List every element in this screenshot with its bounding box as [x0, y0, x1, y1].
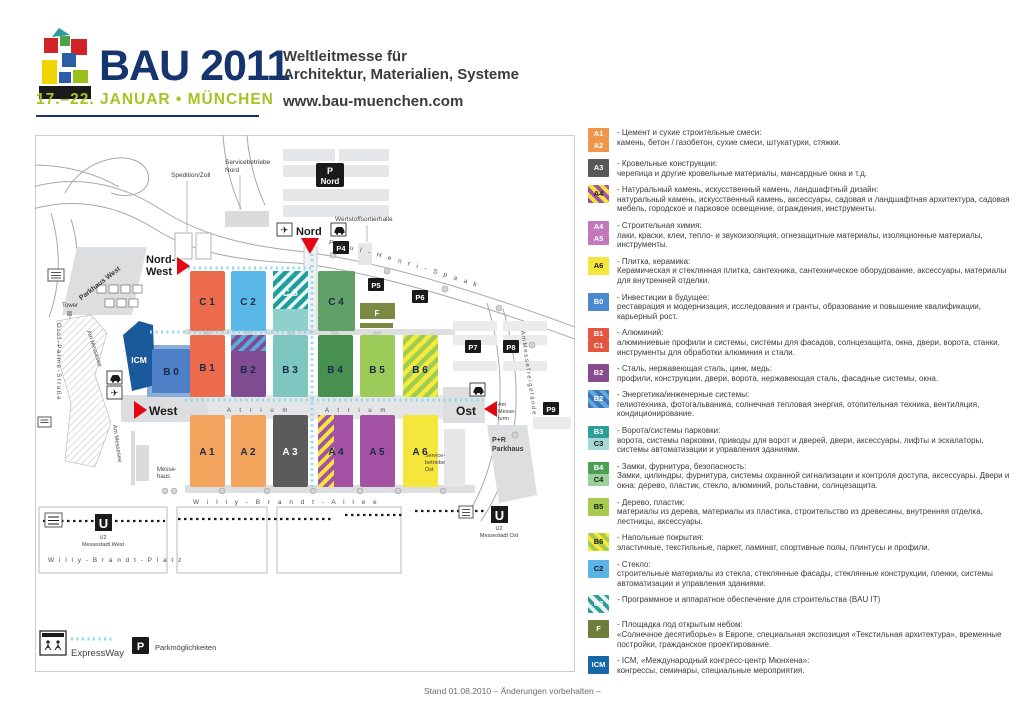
legend-title: - Дерево, пластик:: [617, 498, 1016, 508]
legend-title: - Натуральный камень, искусственный каме…: [617, 185, 1016, 195]
willy-brandt-platz-label: W i l l y - B r a n d t - P l a t z: [48, 557, 183, 564]
hall-label-c4: C 4: [328, 297, 344, 308]
hall-label-b4: B 4: [327, 365, 343, 376]
hall-code-chip: B4C4: [588, 462, 609, 491]
nord-entrance-label: Nord: [296, 226, 322, 238]
wertstoffsortierhalle-label: Wertstoffsortierhalle: [335, 216, 393, 223]
svg-text:U: U: [495, 508, 504, 523]
hall-code-chip: B0: [588, 293, 609, 322]
legend-item: B2 - Энергетика/инженерные системы: гели…: [588, 390, 1016, 419]
hall-label-b2: B 2: [240, 365, 256, 376]
atrium-label: A t r i u m: [325, 408, 389, 414]
svg-text:Nord: Nord: [321, 177, 340, 186]
legend-item: C2 - Стекло: строительные материалы из с…: [588, 560, 1016, 589]
hall-label-b0: B 0: [163, 367, 179, 378]
legend-title: - Напольные покрытия:: [617, 533, 1016, 543]
hall-label-icm: ICM: [131, 355, 147, 365]
legend-item: B2 - Сталь, нержавеющая сталь, цинк, мед…: [588, 364, 1016, 383]
legend-desc: «Солнечное десятиборье» в Европе, специа…: [617, 630, 1016, 649]
svg-text:Parkhaus: Parkhaus: [492, 446, 524, 453]
tower-icon: [67, 311, 72, 316]
legend-title: - Алюминий:: [617, 328, 1016, 338]
legend-item: C3 - Программное и аппаратное обеспечени…: [588, 595, 1016, 613]
hall-label-b1: B 1: [199, 363, 215, 374]
hall-code: B2: [588, 364, 609, 382]
site-map: C 1 C 2 C 3 C 4 B 0 B 1 B 2 B 3 B 4 B 5 …: [35, 135, 575, 672]
bus-icon: [459, 506, 473, 518]
hall-code: B1: [588, 328, 609, 340]
legend-title: - Кровельные конструкции:: [617, 159, 1016, 169]
hall-label-b3: B 3: [282, 365, 298, 376]
svg-text:U2: U2: [99, 535, 106, 541]
svg-text:U2: U2: [495, 526, 502, 532]
website-link[interactable]: www.bau-muenchen.com: [283, 93, 463, 110]
legend-desc: строительные материалы из стекла, стекля…: [617, 569, 1016, 588]
page: BAU 2011 17.–22. JANUAR • MÜNCHEN Weltle…: [0, 0, 1024, 707]
hall-label-a1: A 1: [199, 447, 215, 458]
hall-code: A1: [588, 128, 609, 140]
svg-text:P: P: [137, 641, 144, 653]
hall-code-chip: B1C1: [588, 328, 609, 357]
svg-text:✈: ✈: [281, 225, 289, 235]
claim-line2: Architektur, Materialien, Systeme: [283, 66, 519, 83]
svg-text:P: P: [327, 166, 333, 176]
parkride-icon: [38, 417, 51, 427]
legend-title: - Ворота/системы парковки:: [617, 426, 1016, 436]
legend-item: A6 - Плитка, керамика: Керамическая и ст…: [588, 257, 1016, 286]
plane-badge-west: ✈: [107, 386, 122, 399]
legend-desc: конгрессы, семинары, специальные меропри…: [617, 666, 1016, 676]
footer-note: Stand 01.08.2010 – Änderungen vorbehalte…: [424, 686, 601, 696]
hall-code-chip: A1A2: [588, 128, 609, 152]
legend-item: B1C1 - Алюминий: алюминиевые профили и с…: [588, 328, 1016, 357]
pr-parkhaus-label: P+R: [492, 437, 506, 444]
nordwest-entrance-label: Nord-: [146, 254, 176, 266]
hall-code: B6: [588, 533, 609, 551]
legend-desc: натуральный камень, искусственный камень…: [617, 195, 1016, 214]
hall-code: B2: [588, 390, 609, 408]
svg-text:Messestadt West: Messestadt West: [82, 542, 125, 548]
svg-text:Messestadt Ost: Messestadt Ost: [480, 533, 519, 539]
area-label-f: F: [375, 309, 380, 318]
page-title: BAU 2011: [99, 42, 289, 91]
legend-desc: лаки, краски, клеи, тепло- и звукоизоляц…: [617, 231, 1016, 250]
parkmoeglichkeiten-label: Parkmöglichkeiten: [155, 643, 216, 652]
hall-label-b5: B 5: [369, 365, 385, 376]
legend-title: - Цемент и сухие строительные смеси:: [617, 128, 1016, 138]
svg-text:P7: P7: [468, 343, 477, 352]
legend-desc: реставрация и модернизация, исследования…: [617, 302, 1016, 321]
hall-code: A3: [588, 159, 609, 177]
svg-text:P8: P8: [506, 343, 515, 352]
legend-item: A1A2 - Цемент и сухие строительные смеси…: [588, 128, 1016, 152]
hall-code: A2: [588, 140, 609, 152]
messehaus-building: [136, 445, 149, 481]
svg-text:betriebe: betriebe: [425, 460, 445, 466]
hall-code: A4: [588, 221, 609, 233]
legend-desc: алюминиевые профили и системы, системы д…: [617, 338, 1016, 357]
legend-desc: Замки, цилиндры, фурнитура, системы охра…: [617, 471, 1016, 490]
hall-code-chip: B2: [588, 364, 609, 383]
claim-line1: Weltleitmesse für: [283, 48, 407, 65]
legend-title: - Строительная химия:: [617, 221, 1016, 231]
legend-desc: материалы из дерева, материалы из пласти…: [617, 507, 1016, 526]
legend-item: B3C3 - Ворота/системы парковки: ворота, …: [588, 426, 1016, 455]
servicebetriebe-ost-label: Service-: [425, 453, 445, 459]
hall-label-a5: A 5: [369, 447, 385, 458]
legend-item: A4 - Натуральный камень, искусственный к…: [588, 185, 1016, 214]
servicebetriebe-nord-building: [225, 211, 269, 227]
hall-label-b6: B 6: [412, 365, 428, 376]
legend-desc: ворота, системы парковки, приводы для во…: [617, 436, 1016, 455]
hall-code: B0: [588, 293, 609, 311]
ost-entrance-label: Ost: [456, 404, 476, 418]
hall-code-chip: B5: [588, 498, 609, 527]
hall-code: C2: [588, 560, 609, 578]
svg-text:Messe-: Messe-: [498, 409, 516, 415]
atrium-label: A t r i u m: [227, 408, 291, 414]
hall-label-c2: C 2: [240, 297, 256, 308]
legend-title: - Площадка под открытым небом:: [617, 620, 1016, 630]
legend-title: - Замки, фурнитура, безопасность:: [617, 462, 1016, 472]
olof-palme-strasse-label: O l o f - P a l m e - S t r a ß e: [55, 323, 61, 400]
hall-code-chip: A6: [588, 257, 609, 286]
hall-code-chip: A3: [588, 159, 609, 178]
servicebetriebe-ost-building: [444, 429, 465, 487]
legend-list: A1A2 - Цемент и сухие строительные смеси…: [588, 128, 1016, 682]
plane-badge-nord: ✈: [277, 223, 292, 236]
hall-code: C4: [588, 474, 609, 486]
hall-code-chip: B3C3: [588, 426, 609, 455]
legend-desc: камень, бетон / газобетон, сухие смеси, …: [617, 138, 1016, 148]
expressway-label: ExpressWay: [71, 648, 124, 659]
hall-code: ICM: [588, 656, 609, 674]
legend-item: B6 - Напольные покрытия: эластичные, тек…: [588, 533, 1016, 552]
svg-text:haus: haus: [157, 474, 170, 480]
hall-code: C3: [588, 438, 609, 450]
legend-title: - Программное и аппаратное обеспечение д…: [617, 595, 1016, 605]
legend-item: A4A5 - Строительная химия: лаки, краски,…: [588, 221, 1016, 250]
svg-text:P9: P9: [546, 405, 555, 414]
parkride-icon: [48, 269, 64, 281]
spedition-label: Spedition/Zoll: [171, 172, 211, 179]
hall-label-a2: A 2: [240, 447, 256, 458]
hall-code-chip: F: [588, 620, 609, 649]
legend-title: - Энергетика/инженерные системы:: [617, 390, 1016, 400]
hall-code: B4: [588, 462, 609, 474]
legend-title: - Плитка, керамика:: [617, 257, 1016, 267]
am-messeturm-label: Am: [498, 402, 507, 408]
legend-item: B4C4 - Замки, фурнитура, безопасность: З…: [588, 462, 1016, 491]
willy-brandt-allee-label: W i l l y - B r a n d t - A l l e e: [193, 499, 380, 506]
hall-code: A4: [588, 185, 609, 203]
tower-label: Tower: [62, 303, 78, 309]
hall-code-chip: A4: [588, 185, 609, 214]
hall-code: B3: [588, 426, 609, 438]
hall-code-chip: B6: [588, 533, 609, 552]
hall-label-a3: A 3: [282, 447, 298, 458]
hall-label-a4: A 4: [328, 447, 344, 458]
spedition-building: [175, 233, 192, 259]
svg-text:Nord: Nord: [225, 167, 239, 174]
hall-code-chip: C2: [588, 560, 609, 589]
legend-title: - Стекло:: [617, 560, 1016, 570]
hall-code-chip: B2: [588, 390, 609, 419]
car-badge-ost: [470, 383, 485, 396]
legend-title: - Сталь, нержавеющая сталь, цинк, медь:: [617, 364, 1016, 374]
hall-code-chip: ICM: [588, 656, 609, 675]
svg-text:✈: ✈: [111, 388, 119, 398]
legend-title: - ICM, «Международный конгресс-центр Мюн…: [617, 656, 1016, 666]
svg-text:U: U: [99, 516, 108, 531]
messehaus-label: Messe-: [157, 467, 177, 473]
legend-desc: гелиотехника, фотогальваника, солнечная …: [617, 400, 1016, 419]
svg-text:West: West: [146, 266, 172, 278]
tram-icon: [45, 513, 62, 527]
hall-label-c3: C 3: [282, 288, 298, 299]
hall-label-c1: C 1: [199, 297, 215, 308]
hall-code: A5: [588, 233, 609, 245]
legend-item: B5 - Дерево, пластик: материалы из дерев…: [588, 498, 1016, 527]
legend-desc: эластичные, текстильные, паркет, ламинат…: [617, 543, 1016, 553]
hall-code-chip: C3: [588, 595, 609, 613]
event-dates: 17.–22. JANUAR • MÜNCHEN: [36, 91, 274, 109]
car-badge-west: [107, 371, 122, 384]
hall-code: A6: [588, 257, 609, 275]
hall-code: B5: [588, 498, 609, 516]
servicebetriebe-nord-label: Servicebetriebe: [225, 159, 271, 166]
hall-code: F: [588, 620, 609, 638]
west-entrance-label: West: [149, 404, 177, 418]
hall-code: C3: [588, 595, 609, 613]
legend-desc: профили, конструкции, двери, ворота, нер…: [617, 374, 1016, 384]
svg-text:P6: P6: [415, 293, 424, 302]
hall-code: C1: [588, 340, 609, 352]
svg-text:P5: P5: [371, 281, 380, 290]
svg-text:turm: turm: [498, 416, 509, 422]
legend-title: - Инвестиции в будущее:: [617, 293, 1016, 303]
legend-desc: Керамическая и стеклянная плитка, сантех…: [617, 266, 1016, 285]
hall-code-chip: A4A5: [588, 221, 609, 250]
legend-item: A3 - Кровельные конструкции: черепица и …: [588, 159, 1016, 178]
legend-item: ICM - ICM, «Международный конгресс-центр…: [588, 656, 1016, 675]
car-badge-nord: [331, 223, 346, 236]
legend-desc: черепица и другие кровельные материалы, …: [617, 169, 1016, 179]
svg-text:Ost: Ost: [425, 467, 434, 473]
legend-item: F - Площадка под открытым небом: «Солнеч…: [588, 620, 1016, 649]
header-divider: [36, 115, 259, 117]
legend-item: B0 - Инвестиции в будущее: реставрация и…: [588, 293, 1016, 322]
